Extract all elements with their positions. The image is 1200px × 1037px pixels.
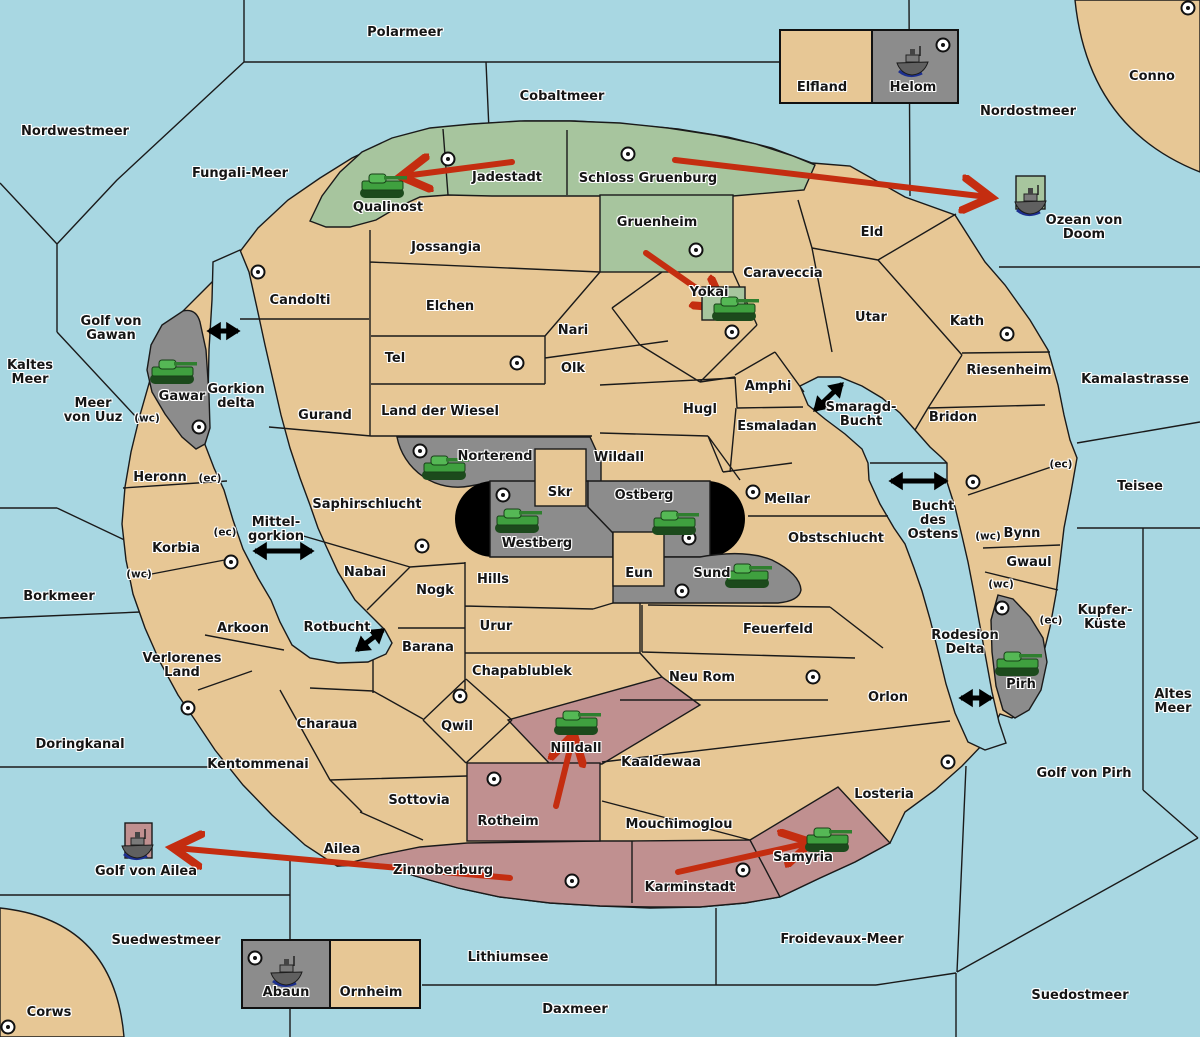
supply-center-icon <box>193 421 206 434</box>
supply-center-icon <box>937 39 950 52</box>
supply-center-icon <box>249 952 262 965</box>
supply-center-icon <box>1001 328 1014 341</box>
game-map: PolarmeerCobaltmeerNordwestmeerFungali-M… <box>0 0 1200 1037</box>
supply-center-icon <box>967 476 980 489</box>
supply-center-icon <box>511 357 524 370</box>
supply-center-icon <box>676 585 689 598</box>
box-elfland[interactable] <box>780 30 872 103</box>
supply-center-icon <box>622 148 635 161</box>
map-canvas <box>0 0 1200 1037</box>
supply-center-icon <box>416 540 429 553</box>
region-eun[interactable] <box>613 532 664 586</box>
supply-center-icon <box>690 244 703 257</box>
region-skr[interactable] <box>535 449 586 506</box>
supply-center-icon <box>737 864 750 877</box>
supply-center-icon <box>726 326 739 339</box>
supply-center-icon <box>807 671 820 684</box>
region-gruenheim[interactable] <box>600 195 733 272</box>
box-ornheim[interactable] <box>330 940 420 1008</box>
supply-center-icon <box>182 702 195 715</box>
supply-center-icon <box>996 602 1009 615</box>
supply-center-icon <box>414 445 427 458</box>
supply-center-icon <box>442 153 455 166</box>
supply-center-icon <box>225 556 238 569</box>
supply-center-icon <box>566 875 579 888</box>
supply-center-icon <box>252 266 265 279</box>
region-rotheim[interactable] <box>467 763 600 841</box>
fleet-unit-golf-von-ailea[interactable] <box>122 823 153 859</box>
supply-center-icon <box>942 756 955 769</box>
supply-center-icon <box>2 1021 15 1034</box>
supply-center-icon <box>454 690 467 703</box>
supply-center-icon <box>488 773 501 786</box>
supply-center-icon <box>747 486 760 499</box>
fleet-unit-ozean-von-doom[interactable] <box>1015 176 1046 215</box>
supply-center-icon <box>1182 2 1195 15</box>
supply-center-icon <box>497 489 510 502</box>
